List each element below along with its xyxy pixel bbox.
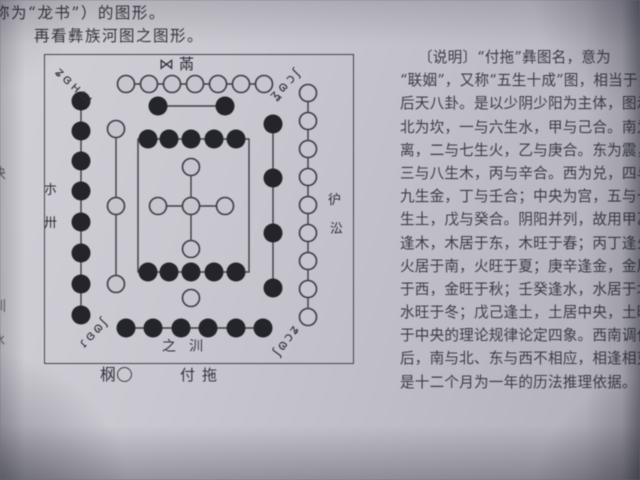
hollow-dot: [233, 76, 250, 93]
hollow-dot: [118, 76, 135, 93]
filled-dot: [199, 319, 218, 338]
hollow-dot: [141, 76, 158, 93]
hollow-dot: [300, 197, 317, 214]
description-line: 生土，戊与癸合。阴阳并列，故用甲乙: [400, 208, 638, 231]
filled-dot: [264, 224, 283, 243]
yi-script-left-side-label: 朩: [44, 179, 57, 198]
hollow-dot: [210, 76, 227, 93]
book-page-photo: 称为“龙书”）的图形。 再看彝族河图之图形。 诀 训 冰 ⋈㒼 ʑɞʜɰ ʓɷɔ…: [0, 0, 640, 480]
intro-text-line2: 再看彝族河图之图形。: [34, 24, 204, 46]
description-line: 九生金，丁与壬合；中央为宫，五与十: [400, 185, 638, 208]
description-line: 离，二与七生火，乙与庚合。东为震，: [400, 139, 638, 162]
hollow-dot: [150, 198, 167, 215]
hollow-dot: [300, 281, 317, 298]
hollow-dot: [108, 198, 125, 215]
hollow-dot: [183, 159, 200, 176]
filled-dot: [205, 130, 224, 149]
filled-dot: [264, 169, 283, 188]
left-edge-bleed-text: 冰: [0, 330, 5, 350]
filled-dot: [182, 263, 201, 282]
yi-glyph-caption: 㭎: [100, 365, 116, 384]
hollow-dot: [300, 85, 317, 102]
yi-script-bottom-center-label: 之汌: [162, 336, 216, 356]
figure-caption: 㭎付拖: [100, 361, 224, 385]
hollow-dot: [108, 121, 125, 138]
filled-dot: [72, 213, 91, 232]
filled-dot: [72, 122, 91, 141]
filled-dot: [160, 263, 179, 282]
hetu-river-diagram: ⋈㒼 ʑɞʜɰ ʓɷɔʃ ɾɞɷʃ ʃɷɔʑ 朩 卅 㣗 㳂 之汌: [44, 54, 354, 364]
hollow-dot: [217, 198, 234, 215]
description-column: 〔说明〕“付拖”彝图名，意为 “联姻”，又称“五生十成”图，相当于 后天八卦。是…: [400, 46, 638, 394]
filled-dot: [149, 97, 168, 116]
filled-dot: [72, 275, 91, 294]
filled-dot: [182, 130, 201, 149]
hollow-dot: [183, 290, 200, 307]
hollow-dot: [300, 253, 317, 270]
description-line: 火居于南，火旺于夏；庚辛逢金，金居: [400, 255, 638, 278]
filled-dot: [216, 97, 235, 116]
hollow-dot: [187, 76, 204, 93]
description-line: 后天八卦。是以少阴少阳为主体，图示: [400, 92, 638, 115]
filled-dot: [72, 152, 91, 171]
yi-script-top-center-label: ⋈㒼: [159, 53, 199, 74]
legend-hollow-circle-icon: [117, 367, 132, 382]
description-line: 〔说明〕“付拖”彝图名，意为: [400, 46, 638, 69]
hollow-dot: [300, 141, 317, 158]
description-line: 北为坎，一与六生水，甲与己合。南为: [400, 116, 638, 139]
filled-dot: [227, 130, 246, 149]
filled-dot: [72, 244, 91, 263]
description-line: 三与八生木，丙与辛合。西为兑，四与: [400, 162, 638, 185]
filled-dot: [227, 263, 246, 282]
description-line: “联姻”，又称“五生十成”图，相当于: [400, 69, 638, 92]
filled-dot: [160, 130, 179, 149]
filled-dot: [72, 182, 91, 201]
filled-dot: [227, 319, 246, 338]
description-line: 后，南与北、东与西不相应，相逢相克，: [400, 347, 638, 370]
hollow-dot: [300, 309, 317, 326]
filled-dot: [254, 319, 273, 338]
yi-script-right-side-label: 㣗: [328, 189, 341, 208]
hollow-dot: [300, 169, 317, 186]
hollow-dot: [108, 276, 125, 293]
hollow-dot: [183, 241, 200, 258]
description-line: 逢木，木居于东，木旺于春；丙丁逢火，: [400, 232, 638, 255]
left-edge-bleed-text: 诀: [0, 163, 6, 183]
filled-dot: [172, 319, 191, 338]
filled-dot: [144, 319, 163, 338]
hollow-dot: [183, 198, 200, 215]
yi-script-left-side-label: 卅: [44, 212, 57, 231]
left-edge-bleed-text: 训: [0, 296, 6, 316]
description-line: 水旺于冬；戊己逢土，土居中央，土旺: [400, 301, 638, 324]
filled-dot: [139, 263, 158, 282]
hollow-dot: [164, 76, 181, 93]
description-line: 于中央的理论规律论定四象。西南调位: [400, 324, 638, 347]
filled-dot: [117, 319, 136, 338]
figure-title: 付拖: [180, 366, 224, 384]
filled-dot: [205, 263, 224, 282]
hollow-dot: [300, 225, 317, 242]
filled-dot: [139, 130, 158, 149]
filled-dot: [72, 306, 91, 325]
filled-dot: [264, 279, 283, 298]
intro-text-line1: 称为“龙书”）的图形。: [0, 1, 166, 23]
description-line: 于西，金旺于秋；壬癸逢水，水居于北，: [400, 278, 638, 301]
description-line: 是十二个月为一年的历法推理依据。: [400, 371, 638, 394]
hollow-dot: [300, 113, 317, 130]
yi-script-right-side-label: 㳂: [330, 218, 343, 237]
filled-dot: [264, 115, 283, 134]
